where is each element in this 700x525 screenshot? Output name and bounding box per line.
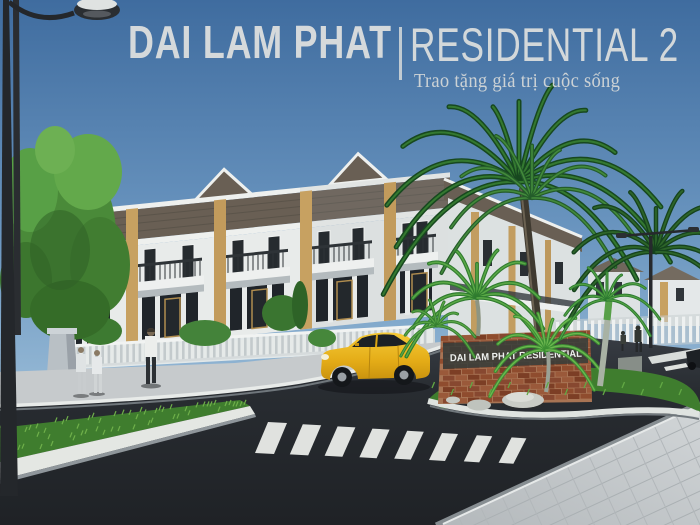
project-title: RESIDENTIAL 2 <box>410 21 679 68</box>
entrance-sign-wall: DAI LAM PHAT RESIDENTIAL <box>437 330 605 411</box>
title-divider <box>399 27 402 80</box>
tagline: Trao tặng giá trị cuộc sống <box>414 72 620 92</box>
hero-image: DAI LAM PHAT RESIDENTIAL <box>0 0 700 525</box>
brand-title: DAI LAM PHAT <box>128 19 392 65</box>
parked-dark-car <box>686 349 700 370</box>
